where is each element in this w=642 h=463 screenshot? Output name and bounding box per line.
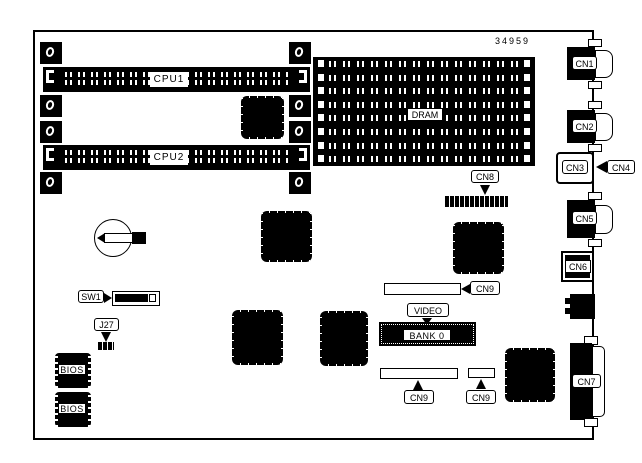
sw1-label: SW1 [78,290,104,303]
connector-tab [588,144,602,152]
cn8-connector [445,196,508,207]
screw-hole [294,125,305,137]
cn9-bottom-left-label: CN9 [404,390,434,404]
screw-hole [45,125,56,137]
chip-qfp-5 [453,222,504,274]
motherboard-diagram: 34959 CPU1 CPU2 DRAM CN8 [0,0,642,463]
slot-bracket-left [46,70,54,83]
battery-clip-bar [104,233,133,243]
latch-icon [317,141,325,150]
latch-icon [523,127,531,136]
pin-row [329,143,519,149]
cn9-bottom-left-connector [380,368,458,379]
latch-icon [317,154,325,163]
slot-bracket-left [46,148,54,161]
chip-qfp-4 [320,311,368,366]
dip-switch-open [149,294,156,302]
dip-switch-segments [115,294,148,302]
bios-chip-2: BIOS [55,392,91,427]
cn9-top-label: CN9 [470,281,500,295]
latch-icon [317,86,325,95]
pin-row [329,88,519,94]
cn6-label: CN6 [565,260,591,273]
cn1-shell [595,50,613,78]
video-label: VIDEO [407,303,449,317]
screw-hole [294,99,305,111]
latch-icon [317,59,325,68]
dram-slot-6 [313,125,535,139]
cpu2-mount-bottom-right [289,172,311,194]
cn9-bottom-right-connector [468,368,495,378]
latch-icon [523,59,531,68]
cn2-label: CN2 [572,119,597,133]
din-nub [565,308,571,314]
pin-row [329,129,519,135]
cpu2-slot: CPU2 [43,145,310,170]
cpu2-mount-top-left [40,121,62,143]
latch-icon [523,100,531,109]
dram-slot-2 [313,71,535,85]
screw-hole [45,46,56,58]
chip-qfp-1 [241,96,284,139]
bank0-label: BANK 0 [403,329,451,341]
cn7-label: CN7 [572,374,601,388]
pin-row [329,75,519,81]
battery-clip-end [132,232,146,244]
connector-tab [588,81,602,89]
cn5-label: CN5 [572,211,597,225]
cpu2-label: CPU2 [150,150,188,165]
screw-hole [294,176,305,188]
cn9-top-connector [384,283,461,295]
pointer-right-icon [104,293,112,303]
latch-icon [317,73,325,82]
dram-label: DRAM [407,108,443,121]
part-number: 34959 [495,36,530,46]
latch-icon [523,73,531,82]
cpu1-mount-top-left [40,42,62,64]
screw-hole [45,176,56,188]
pointer-down-icon [480,185,490,195]
latch-icon [317,100,325,109]
chip-qfp-2 [261,211,312,262]
slot-bracket-right [299,148,307,161]
connector-tab [584,418,598,427]
pointer-left-icon [461,284,470,294]
dram-slot-8 [313,152,535,166]
bios1-label: BIOS [58,364,86,375]
screw-hole [294,46,305,58]
cn3-label: CN3 [562,160,588,174]
cn1-label: CN1 [572,56,597,70]
cpu1-mount-bottom-right [289,95,311,117]
bank0-socket: BANK 0 [379,322,476,346]
cn5-shell [595,205,613,234]
connector-tab [588,39,602,47]
cn4-label: CN4 [607,160,635,174]
sw1-dip-switch [112,291,160,306]
bios-chip-1: BIOS [55,353,91,388]
dram-slot-7 [313,139,535,153]
dram-slot-1 [313,57,535,71]
cpu1-label: CPU1 [150,72,188,87]
latch-icon [317,127,325,136]
cpu2-mount-top-right [289,121,311,143]
pin-row [329,61,519,67]
chip-qfp-3 [232,310,283,365]
latch-icon [523,113,531,122]
cn9-bottom-right-label: CN9 [466,390,496,404]
cpu1-mount-bottom-left [40,95,62,117]
latch-icon [523,154,531,163]
screw-hole [45,99,56,111]
cpu1-slot: CPU1 [43,67,310,92]
bios2-label: BIOS [58,403,86,414]
pointer-left-icon [596,161,607,173]
pointer-up-icon [476,379,486,389]
latch-icon [317,113,325,122]
pin-row [329,156,519,162]
slot-bracket-right [299,70,307,83]
chip-qfp-6 [505,348,555,402]
connector-tab [588,101,602,109]
pointer-up-icon [413,380,423,390]
din-connector [570,294,595,319]
latch-icon [523,86,531,95]
dram-slot-3 [313,84,535,98]
connector-tab [588,239,602,247]
din-nub [565,298,571,304]
latch-icon [523,141,531,150]
pointer-down-icon [101,332,111,342]
cpu2-mount-bottom-left [40,172,62,194]
cn8-label: CN8 [471,170,499,183]
cpu1-mount-top-right [289,42,311,64]
connector-tab [588,192,602,200]
j27-jumper [98,342,114,350]
j27-label: J27 [94,318,119,331]
cn2-shell [595,113,613,141]
